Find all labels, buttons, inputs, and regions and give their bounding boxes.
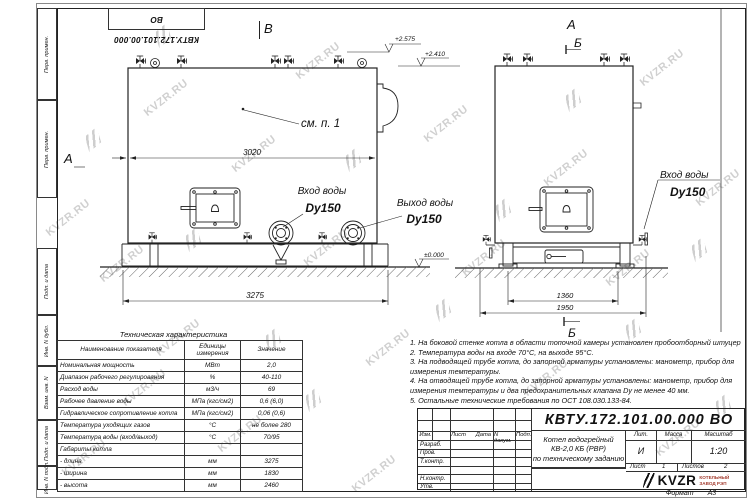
front-door: [181, 188, 240, 228]
spec-unit: °С: [185, 420, 241, 432]
side-view: [455, 54, 668, 278]
spec-value: 40-110: [241, 372, 303, 384]
spec-unit: °С: [185, 432, 241, 444]
spec-value: 2,0: [241, 360, 303, 372]
note-item: 2. Температура воды на входе 70°С, на вы…: [410, 348, 746, 358]
lit-value: И: [626, 446, 656, 456]
spec-name: - высота: [58, 480, 185, 492]
spec-header-value: Значение: [241, 341, 303, 360]
col-podp: Подп.: [516, 432, 531, 438]
spec-value: 1830: [241, 468, 303, 480]
peephole: [212, 205, 219, 212]
kvzr-logo-icon: [643, 473, 655, 488]
format-value: А3: [708, 490, 717, 497]
dim-3275-label: 3275: [246, 291, 264, 300]
spec-header-unit: Единицы измерения: [185, 341, 241, 360]
side-fittings: [483, 233, 648, 258]
spec-unit: мм: [185, 468, 241, 480]
front-inlet-label: Вход воды: [298, 186, 347, 197]
elevation-0000-label: ±0.000: [424, 252, 444, 259]
spec-name: Гидравлическое сопротивление котла: [58, 408, 185, 420]
sheet-value: 1: [662, 464, 674, 470]
dim-1950-label: 1950: [557, 303, 575, 312]
spec-value: 0,06 (0,6): [241, 408, 303, 420]
company-logo: KVZR КОТЕЛЬНЫЙ ЗАВОД РЭП: [626, 471, 746, 490]
spec-name: Номинальная мощность: [58, 360, 185, 372]
sheets-value: 2: [724, 464, 738, 470]
inlet-flange: [269, 221, 293, 245]
spec-table-title: Техническая характеристика: [57, 330, 290, 339]
col-data: Дата: [451, 432, 493, 438]
front-view: [100, 56, 430, 277]
spec-value: 70/95: [241, 432, 303, 444]
section-b-top-label: Б: [574, 36, 582, 50]
spec-value: 2460: [241, 480, 303, 492]
technical-notes: 1. На боковой стенке котла в области топ…: [410, 338, 746, 405]
elevation-2575-label: +2.575: [395, 36, 415, 43]
front-outlet-label: Выход воды: [397, 198, 454, 209]
spec-name: - ширина: [58, 468, 185, 480]
company-name-line1: КОТЕЛЬНЫЙ: [699, 475, 729, 480]
side-base: [499, 243, 634, 268]
spec-value: 3275: [241, 456, 303, 468]
spec-name: - длина: [58, 456, 185, 468]
row-razrab: Разраб.: [419, 441, 451, 449]
front-inlet-dn: Dy150: [305, 201, 341, 215]
elevation-2410-label: +2.410: [425, 51, 445, 58]
front-outlet-dn: Dy150: [406, 212, 442, 226]
spec-header-name: Наименование показателя: [58, 341, 185, 360]
company-name-line2: ЗАВОД РЭП: [699, 481, 729, 486]
spec-name: Габариты котла: [58, 444, 185, 456]
side-inlet-dn: Dy150: [670, 185, 706, 199]
side-view-a-label: А: [566, 17, 576, 32]
spec-unit: %: [185, 372, 241, 384]
lifting-lug: [358, 59, 367, 68]
product-name-line1: Котел водогрейный: [543, 435, 613, 444]
spec-unit: [185, 444, 241, 456]
dim-1360-label: 1360: [557, 291, 575, 300]
product-name-line2: КВ-2,0 КБ (РВР): [551, 444, 606, 453]
front-annotations: [74, 21, 460, 305]
spec-value: [241, 444, 303, 456]
spec-row: Номинальная мощностьМВт2,0: [58, 360, 303, 372]
mass-header: Масса: [656, 432, 691, 438]
spec-value: 69: [241, 384, 303, 396]
spec-unit: м3/ч: [185, 384, 241, 396]
product-name-line3: по техническому заданию: [533, 454, 624, 463]
scale-header: Масштаб: [691, 432, 746, 438]
row-tkontr: Т.контр.: [419, 458, 451, 466]
door-handle: [181, 207, 196, 210]
spec-value: не более 280: [241, 420, 303, 432]
spec-row: Температура воды (вход/выход)°С70/95: [58, 432, 303, 444]
spec-header-row: Наименование показателя Единицы измерени…: [58, 341, 303, 360]
spec-unit: МПа (кгс/см2): [185, 408, 241, 420]
spec-name: Температура воды (вход/выход): [58, 432, 185, 444]
row-prov: Пров.: [419, 449, 451, 457]
spec-unit: МПа (кгс/см2): [185, 396, 241, 408]
company-name: КОТЕЛЬНЫЙ ЗАВОД РЭП: [699, 475, 729, 486]
side-door: [529, 187, 593, 232]
spec-table-block: Техническая характеристика Наименование …: [57, 330, 290, 492]
lit-header: Лит.: [626, 432, 656, 438]
scale-value: 1:20: [691, 446, 746, 456]
spec-row: - ширинамм1830: [58, 468, 303, 480]
spec-row: Рабочее давление водыМПа (кгс/см2)0,6 (6…: [58, 396, 303, 408]
side-inlet-label: Вход воды: [660, 170, 709, 181]
spec-name: Расход воды: [58, 384, 185, 396]
see-note-label: см. п. 1: [301, 118, 340, 130]
spec-table: Наименование показателя Единицы измерени…: [57, 340, 303, 492]
spec-name: Температура уходящих газов: [58, 420, 185, 432]
row-nkontr: Н.контр.: [419, 475, 451, 483]
peephole: [563, 206, 570, 213]
ground-hatch: [455, 268, 668, 278]
col-izm: Изм.: [419, 432, 432, 438]
sheet-label: Лист: [630, 464, 652, 470]
note-item: 3. На подводящей трубе котла, до запорно…: [410, 357, 746, 376]
flue-duct: [377, 84, 398, 132]
col-ndoc: N докум.: [494, 432, 515, 444]
note-item: 4. На отводящей трубе котла, до запорной…: [410, 376, 746, 395]
spec-row: - высотамм2460: [58, 480, 303, 492]
format-note: Формат А3: [636, 490, 746, 497]
doc-number: КВТУ.172.101.00.000 ВО: [531, 409, 746, 431]
title-block: КВТУ.172.101.00.000 ВО Котел водогрейный…: [417, 408, 745, 490]
view-a-arrow-label: А: [63, 151, 73, 166]
spec-name: Рабочее давление воды: [58, 396, 185, 408]
sheets-label: Листов: [682, 464, 712, 470]
spec-unit: мм: [185, 456, 241, 468]
view-b-label: В: [264, 21, 273, 36]
spec-row: Температура уходящих газов°Сне более 280: [58, 420, 303, 432]
front-base: [122, 244, 388, 266]
spec-row: Габариты котла: [58, 444, 303, 456]
spec-row: Диапазон рабочего регулирования%40-110: [58, 372, 303, 384]
spec-value: 0,6 (6,0): [241, 396, 303, 408]
note-item: 5. Остальные технические требования по О…: [410, 396, 746, 406]
spec-unit: мм: [185, 480, 241, 492]
dim-3020-label: 3020: [243, 148, 261, 157]
drawing-sheet: KVZR.RU KVZR.RU KVZR.RU KVZR.RU KVZR.RU …: [0, 0, 750, 500]
lifting-lug: [151, 59, 160, 68]
format-label: Формат: [666, 490, 694, 497]
ground-hatch: [100, 267, 430, 277]
spec-unit: МВт: [185, 360, 241, 372]
outlet-flange: [341, 221, 365, 245]
spec-row: Гидравлическое сопротивление котлаМПа (к…: [58, 408, 303, 420]
note-item: 1. На боковой стенке котла в области топ…: [410, 338, 746, 348]
spec-name: Диапазон рабочего регулирования: [58, 372, 185, 384]
kvzr-logo-text: KVZR: [658, 473, 697, 488]
product-name: Котел водогрейный КВ-2,0 КБ (РВР) по тех…: [531, 431, 626, 468]
row-utv: Утв.: [419, 483, 451, 491]
spec-row: - длинамм3275: [58, 456, 303, 468]
spec-row: Расход водым3/ч69: [58, 384, 303, 396]
